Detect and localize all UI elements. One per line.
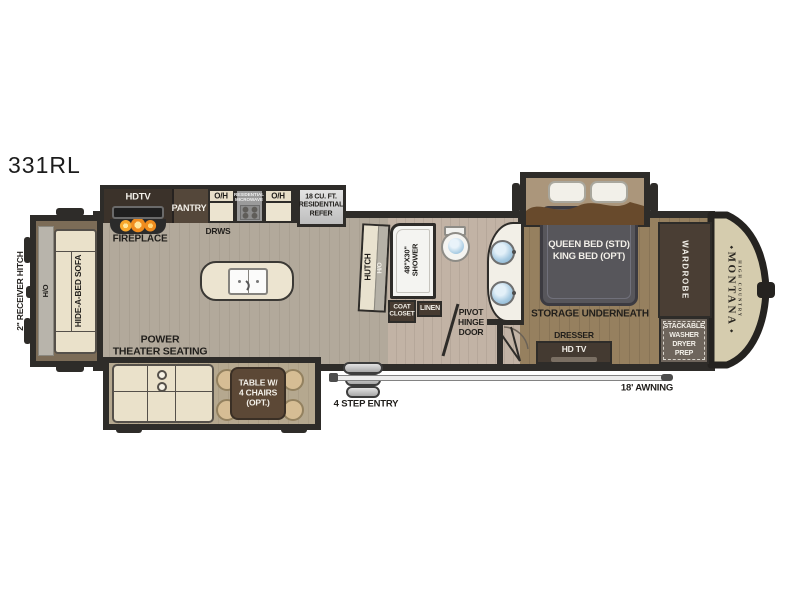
step-entry-label: 4 STEP ENTRY bbox=[334, 400, 399, 411]
awning-label: 18' AWNING bbox=[621, 384, 673, 395]
sofa-label: HIDE-A-BED SOFA bbox=[74, 255, 84, 328]
hutch-oh-label: H/O bbox=[376, 263, 383, 274]
refrigerator-label: 18 CU. FT.RESIDENTIALREFER bbox=[299, 193, 343, 218]
logo-name: MONTANA bbox=[725, 252, 737, 327]
montana-logo: HIGH COUNTRY ◆ MONTANA ◆ bbox=[725, 246, 742, 333]
logo-ornament-right: ◆ bbox=[729, 329, 733, 332]
sofa-ho-label: H/O bbox=[42, 285, 50, 298]
theater-label: POWERTHEATER SEATING bbox=[113, 334, 208, 357]
pivot-door-label: PIVOTHINGEDOOR bbox=[458, 307, 484, 337]
receiver-hitch-label: 2" RECEIVER HITCH bbox=[16, 251, 26, 331]
shower-label: 48"X30"SHOWER bbox=[404, 244, 421, 277]
pantry-label: PANTRY bbox=[172, 203, 207, 213]
model-number: 331RL bbox=[8, 152, 81, 179]
bed-label: QUEEN BED (STD)KING BED (OPT) bbox=[548, 239, 629, 263]
hdtv-label: HDTV bbox=[125, 193, 150, 204]
oh-right-label: O/H bbox=[271, 193, 285, 202]
linen-label: LINEN bbox=[420, 305, 440, 313]
coat-closet-label: COATCLOSET bbox=[389, 304, 414, 319]
island-faucet bbox=[246, 281, 249, 290]
fireplace-label: FIREPLACE bbox=[113, 233, 168, 244]
oh-left-label: O/H bbox=[214, 193, 228, 202]
dresser-label: DRESSER bbox=[554, 331, 594, 341]
detail-lines bbox=[0, 0, 800, 600]
logo-sub: HIGH COUNTRY bbox=[738, 246, 743, 333]
floorplan-331rl: 331RL HDTV PANTRY FIREPLACE O/H RESIDENT… bbox=[0, 0, 800, 600]
microwave-label: RESIDENTIALMICROWAVE bbox=[234, 192, 264, 202]
wardrobe-label: WARDROBE bbox=[680, 240, 689, 300]
bedroom-tv-label: HD TV bbox=[562, 345, 587, 355]
hutch-label: HUTCH bbox=[365, 254, 374, 281]
pivot-door-swing bbox=[443, 304, 458, 356]
washer-dryer-label: STACKABLEWASHERDRYERPREP bbox=[664, 322, 705, 358]
drawers-label: DRWS bbox=[205, 227, 230, 237]
storage-label: STORAGE UNDERNEATH bbox=[531, 308, 649, 319]
table-label: TABLE W/4 CHAIRS(OPT.) bbox=[239, 378, 278, 409]
logo-ornament-left: ◆ bbox=[729, 246, 733, 249]
